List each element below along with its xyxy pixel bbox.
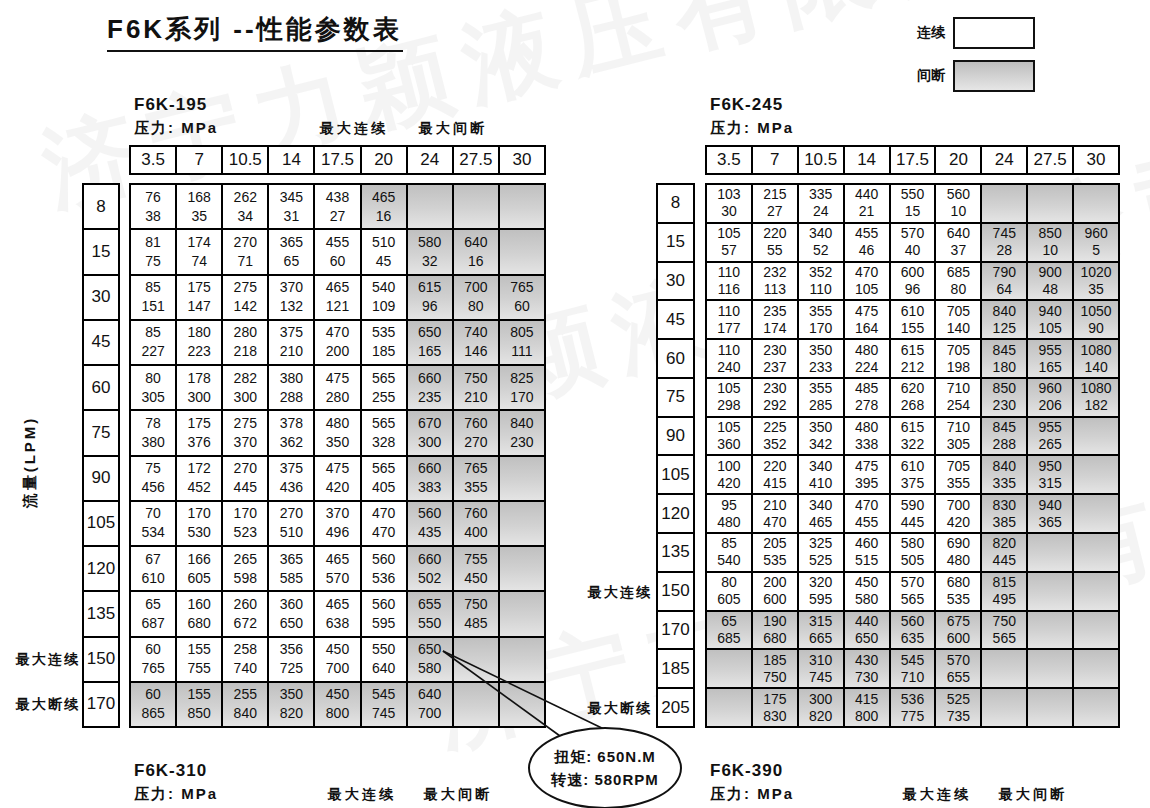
speed-value: 96 [905, 281, 921, 298]
speed-value: 35 [1088, 281, 1104, 298]
torque-value: 270 [280, 504, 303, 523]
param-cell: 940105 [1028, 301, 1072, 338]
torque-value: 185 [763, 652, 786, 669]
param-cell: 700420 [936, 495, 980, 532]
flow-label: 135 [658, 534, 693, 571]
parameter-grid: 7638168352623434531438274651681751747427… [129, 183, 546, 728]
speed-value: 111 [511, 342, 532, 361]
param-cell: 470200 [315, 321, 359, 364]
table-model-title: F6K-245 [710, 95, 783, 115]
speed-value: 342 [809, 436, 832, 453]
side-max-intermittent-label: 最大断续 [580, 700, 652, 718]
speed-value: 16 [468, 252, 484, 271]
torque-value: 900 [1038, 264, 1061, 281]
param-cell: 320595 [799, 573, 843, 610]
speed-value: 109 [372, 297, 395, 316]
param-cell: 17474 [177, 230, 221, 273]
torque-value: 705 [947, 458, 970, 475]
param-cell: 570655 [936, 650, 980, 687]
torque-value: 310 [809, 652, 832, 669]
param-cell: 350233 [799, 340, 843, 377]
param-cell: 170530 [177, 502, 221, 545]
torque-value: 550 [901, 186, 924, 203]
param-cell [1074, 534, 1118, 571]
param-cell [1028, 185, 1072, 222]
torque-value: 225 [763, 419, 786, 436]
speed-value: 140 [947, 320, 970, 337]
param-cell: 258740 [223, 638, 267, 681]
param-cell: 80605 [707, 573, 751, 610]
speed-value: 380 [141, 433, 164, 452]
side-max-continuous-label: 最大连续 [580, 584, 652, 602]
side-max-intermittent-label: 最大断续 [8, 696, 80, 714]
speed-value: 46 [859, 242, 875, 259]
speed-value: 55 [767, 242, 783, 259]
param-cell [500, 592, 544, 635]
speed-value: 775 [901, 708, 924, 725]
param-cell: 565405 [362, 457, 406, 500]
torque-value: 345 [280, 188, 303, 207]
torque-value: 190 [763, 613, 786, 630]
torque-value: 75 [145, 459, 161, 478]
speed-value: 151 [141, 297, 164, 316]
param-cell: 460515 [845, 534, 889, 571]
torque-value: 232 [763, 264, 786, 281]
param-cell: 565328 [362, 411, 406, 454]
param-cell: 380288 [269, 366, 313, 409]
param-cell [982, 689, 1026, 726]
param-cell: 180223 [177, 321, 221, 364]
param-cell: 375436 [269, 457, 313, 500]
torque-value: 80 [721, 574, 737, 591]
param-cell: 615212 [891, 340, 935, 377]
torque-value: 640 [464, 233, 487, 252]
speed-value: 34 [237, 207, 253, 226]
param-cell: 27071 [223, 230, 267, 273]
speed-value: 74 [191, 252, 207, 271]
torque-value: 750 [464, 369, 487, 388]
param-cell: 750565 [982, 612, 1026, 649]
param-cell: 275142 [223, 276, 267, 319]
torque-value: 175 [187, 414, 210, 433]
speed-value: 640 [372, 659, 395, 678]
torque-value: 375 [280, 459, 303, 478]
speed-value: 10 [1042, 242, 1058, 259]
footer-right-model: F6K-390 [710, 761, 783, 781]
speed-value: 212 [901, 359, 924, 376]
param-cell: 465638 [315, 592, 359, 635]
param-cell: 45560 [315, 230, 359, 273]
speed-value: 355 [947, 475, 970, 492]
speed-value: 595 [372, 614, 395, 633]
speed-value: 285 [809, 397, 832, 414]
speed-value: 170 [809, 320, 832, 337]
speed-value: 370 [234, 433, 257, 452]
param-cell: 205535 [753, 534, 797, 571]
param-cell: 10557 [707, 224, 751, 261]
footer-right-max-intermittent: 最大间断 [999, 786, 1067, 804]
legend-continuous-swatch [953, 17, 1035, 49]
param-cell: 940365 [1028, 495, 1072, 532]
speed-value: 510 [280, 523, 303, 542]
speed-value: 750 [763, 669, 786, 686]
param-cell: 475164 [845, 301, 889, 338]
speed-value: 30 [721, 203, 737, 220]
flow-label: 185 [658, 650, 693, 687]
param-cell: 64016 [454, 230, 498, 273]
param-cell: 820445 [982, 534, 1026, 571]
torque-value: 760 [464, 414, 487, 433]
footer-right-pressure-label: 压力: MPa [710, 785, 794, 804]
param-cell: 690480 [936, 534, 980, 571]
param-cell: 232113 [753, 263, 797, 300]
torque-value: 370 [280, 278, 303, 297]
speed-value: 278 [855, 397, 878, 414]
torque-value: 700 [464, 278, 487, 297]
param-cell: 535185 [362, 321, 406, 364]
param-cell: 565255 [362, 366, 406, 409]
torque-value: 745 [993, 225, 1016, 242]
torque-value: 580 [418, 233, 441, 252]
speed-value: 605 [187, 569, 210, 588]
speed-value: 270 [464, 433, 487, 452]
torque-value: 282 [234, 369, 257, 388]
speed-value: 113 [764, 281, 786, 298]
speed-value: 292 [763, 397, 786, 414]
torque-value: 356 [280, 640, 303, 659]
torque-value: 155 [187, 640, 210, 659]
param-cell: 33524 [799, 185, 843, 222]
torque-value: 560 [372, 550, 395, 569]
param-cell: 560435 [408, 502, 452, 545]
torque-value: 545 [901, 652, 924, 669]
torque-value: 60 [145, 640, 161, 659]
torque-value: 820 [993, 535, 1016, 552]
param-cell: 755450 [454, 547, 498, 590]
speed-value: 10 [951, 203, 967, 220]
param-cell: 172452 [177, 457, 221, 500]
speed-value: 27 [767, 203, 783, 220]
param-cell: 282300 [223, 366, 267, 409]
param-cell: 175376 [177, 411, 221, 454]
param-cell: 815495 [982, 573, 1026, 610]
param-cell: 415800 [845, 689, 889, 726]
speed-value: 305 [141, 388, 164, 407]
speed-value: 170 [510, 388, 533, 407]
side-max-continuous-label: 最大连续 [8, 651, 80, 669]
speed-value: 730 [855, 669, 878, 686]
param-cell: 450580 [845, 573, 889, 610]
param-cell: 475280 [315, 366, 359, 409]
footer-left-model: F6K-310 [134, 761, 207, 781]
param-cell: 760270 [454, 411, 498, 454]
param-cell: 356725 [269, 638, 313, 681]
torque-value: 825 [510, 369, 533, 388]
speed-value: 200 [326, 342, 349, 361]
pressure-header-cell: 14 [269, 147, 313, 173]
speed-value: 598 [234, 569, 257, 588]
torque-value: 675 [947, 613, 970, 630]
pressure-header-cell: 30 [1074, 147, 1118, 173]
legend-intermittent-swatch [953, 60, 1035, 92]
torque-value: 470 [372, 504, 395, 523]
torque-value: 650 [418, 640, 441, 659]
param-cell: 750485 [454, 592, 498, 635]
speed-value: 638 [326, 614, 349, 633]
torque-value: 103 [717, 186, 740, 203]
torque-value: 350 [280, 685, 303, 704]
speed-value: 445 [234, 478, 257, 497]
param-cell: 536775 [891, 689, 935, 726]
speed-value: 550 [418, 614, 441, 633]
speed-value: 420 [717, 475, 740, 492]
torque-value: 105 [717, 380, 740, 397]
speed-value: 155 [901, 320, 924, 337]
speed-value: 765 [141, 659, 164, 678]
torque-value: 610 [901, 303, 924, 320]
param-cell: 166605 [177, 547, 221, 590]
torque-value: 840 [993, 458, 1016, 475]
pressure-header-cell: 3.5 [131, 147, 175, 173]
speed-value: 415 [763, 475, 786, 492]
speed-value: 580 [855, 591, 878, 608]
torque-value: 415 [855, 691, 878, 708]
param-cell: 105298 [707, 379, 751, 416]
param-cell: 450700 [315, 638, 359, 681]
speed-value: 71 [237, 252, 253, 271]
speed-value: 530 [187, 523, 210, 542]
torque-value: 570 [901, 574, 924, 591]
speed-value: 385 [993, 514, 1016, 531]
param-cell: 280218 [223, 321, 267, 364]
torque-value: 60 [145, 685, 161, 704]
pressure-header-row: 3.5710.51417.5202427.530 [129, 145, 546, 175]
torque-value: 340 [809, 225, 832, 242]
param-cell: 235174 [753, 301, 797, 338]
torque-value: 378 [280, 414, 303, 433]
torque-value: 760 [464, 504, 487, 523]
speed-value: 570 [326, 569, 349, 588]
param-cell: 230292 [753, 379, 797, 416]
param-cell [1074, 612, 1118, 649]
param-cell: 68580 [936, 263, 980, 300]
torque-value: 455 [855, 225, 878, 242]
speed-value: 600 [947, 630, 970, 647]
torque-value: 438 [326, 188, 349, 207]
speed-value: 233 [809, 359, 832, 376]
torque-value: 172 [187, 459, 210, 478]
param-cell: 475395 [845, 456, 889, 493]
param-cell: 660383 [408, 457, 452, 500]
speed-value: 610 [141, 569, 164, 588]
torque-value: 450 [855, 574, 878, 591]
param-cell: 845288 [982, 418, 1026, 455]
torque-value: 955 [1038, 419, 1061, 436]
param-cell: 255840 [223, 683, 267, 726]
torque-value: 352 [809, 264, 832, 281]
torque-value: 95 [721, 497, 737, 514]
param-cell: 8175 [131, 230, 175, 273]
speed-value: 165 [1038, 359, 1061, 376]
speed-value: 335 [993, 475, 1016, 492]
torque-value: 440 [855, 613, 878, 630]
torque-value: 325 [809, 535, 832, 552]
torque-value: 765 [464, 459, 487, 478]
torque-value: 475 [326, 369, 349, 388]
torque-value: 845 [993, 342, 1016, 359]
torque-value: 280 [234, 323, 257, 342]
speed-value: 865 [141, 704, 164, 723]
torque-value: 67 [145, 550, 161, 569]
param-cell: 440650 [845, 612, 889, 649]
pressure-unit-label: 压力: MPa [134, 119, 218, 138]
param-cell: 615322 [891, 418, 935, 455]
flow-label: 60 [84, 366, 118, 409]
speed-value: 534 [141, 523, 164, 542]
param-cell: 270445 [223, 457, 267, 500]
torque-value: 655 [418, 595, 441, 614]
speed-value: 31 [284, 207, 300, 226]
speed-value: 480 [947, 552, 970, 569]
param-cell: 352110 [799, 263, 843, 300]
speed-value: 60 [330, 252, 346, 271]
torque-value: 365 [280, 233, 303, 252]
torque-value: 950 [1038, 458, 1061, 475]
torque-value: 340 [809, 497, 832, 514]
param-cell [1028, 534, 1072, 571]
torque-value: 65 [145, 595, 161, 614]
torque-value: 960 [1084, 225, 1107, 242]
footer-right-max-continuous: 最大连续 [903, 786, 971, 804]
legend-intermittent-label: 间断 [917, 67, 945, 85]
torque-value: 940 [1038, 303, 1061, 320]
speed-value: 265 [1038, 436, 1061, 453]
param-cell: 85540 [707, 534, 751, 571]
torque-value: 615 [901, 419, 924, 436]
speed-value: 680 [187, 614, 210, 633]
torque-value: 685 [947, 264, 970, 281]
speed-value: 700 [326, 659, 349, 678]
speed-value: 456 [141, 478, 164, 497]
speed-value: 35 [191, 207, 207, 226]
torque-value: 258 [234, 640, 257, 659]
speed-value: 80 [951, 281, 967, 298]
torque-value: 65 [721, 613, 737, 630]
torque-value: 710 [947, 419, 970, 436]
torque-value: 570 [947, 652, 970, 669]
speed-value: 635 [901, 630, 924, 647]
flow-label: 150 [84, 638, 118, 681]
param-cell: 680535 [936, 573, 980, 610]
torque-value: 166 [187, 550, 210, 569]
speed-value: 80 [468, 297, 484, 316]
torque-value: 455 [326, 233, 349, 252]
speed-value: 435 [418, 523, 441, 542]
speed-value: 445 [993, 552, 1016, 569]
torque-value: 175 [187, 278, 210, 297]
speed-value: 142 [234, 297, 257, 316]
flow-axis-label: 流量(LPM) [21, 416, 40, 509]
flow-label: 90 [84, 457, 118, 500]
torque-value: 85 [145, 278, 161, 297]
speed-value: 96 [422, 297, 438, 316]
pressure-unit-label: 压力: MPa [710, 119, 794, 138]
flow-label: 120 [658, 495, 693, 532]
torque-value: 640 [947, 225, 970, 242]
param-cell [1028, 612, 1072, 649]
flow-label: 30 [658, 263, 693, 300]
torque-value: 640 [418, 685, 441, 704]
torque-value: 110 [718, 342, 740, 359]
param-cell: 75456 [131, 457, 175, 500]
param-cell: 560635 [891, 612, 935, 649]
torque-value: 565 [372, 369, 395, 388]
torque-value: 705 [947, 342, 970, 359]
torque-value: 450 [326, 640, 349, 659]
torque-value: 81 [145, 233, 161, 252]
param-cell: 9605 [1074, 224, 1118, 261]
torque-value: 205 [763, 535, 786, 552]
param-cell: 710305 [936, 418, 980, 455]
param-cell: 560536 [362, 547, 406, 590]
torque-value: 180 [187, 323, 210, 342]
torque-value: 840 [993, 303, 1016, 320]
torque-value: 565 [372, 459, 395, 478]
speed-value: 210 [280, 342, 303, 361]
param-cell: 470455 [845, 495, 889, 532]
torque-value: 660 [418, 550, 441, 569]
torque-value: 230 [763, 380, 786, 397]
speed-value: 5 [1092, 242, 1100, 259]
torque-value: 765 [510, 278, 533, 297]
param-cell: 74528 [982, 224, 1026, 261]
param-cell: 45546 [845, 224, 889, 261]
speed-value: 496 [326, 523, 349, 542]
speed-value: 227 [141, 342, 164, 361]
pressure-header-cell: 7 [177, 147, 221, 173]
torque-value: 465 [372, 188, 395, 207]
speed-value: 525 [809, 552, 832, 569]
torque-value: 335 [809, 186, 832, 203]
param-cell: 56010 [936, 185, 980, 222]
speed-value: 338 [855, 436, 878, 453]
speed-value: 740 [234, 659, 257, 678]
torque-value: 545 [372, 685, 395, 704]
param-cell [1028, 689, 1072, 726]
flow-label: 15 [658, 224, 693, 261]
param-cell: 350342 [799, 418, 843, 455]
pressure-header-cell: 24 [982, 147, 1026, 173]
torque-value: 850 [993, 380, 1016, 397]
speed-value: 75 [145, 252, 161, 271]
param-cell: 60096 [891, 263, 935, 300]
param-cell: 660235 [408, 366, 452, 409]
param-cell: 225352 [753, 418, 797, 455]
speed-value: 268 [901, 397, 924, 414]
param-cell: 95480 [707, 495, 751, 532]
torque-value: 450 [326, 685, 349, 704]
speed-value: 21 [859, 203, 875, 220]
param-cell: 170523 [223, 502, 267, 545]
param-cell: 325525 [799, 534, 843, 571]
torque-value: 1080 [1080, 380, 1111, 397]
speed-value: 452 [187, 478, 210, 497]
param-cell: 830385 [982, 495, 1026, 532]
torque-value: 170 [234, 504, 257, 523]
speed-value: 710 [901, 669, 924, 686]
param-cell: 220415 [753, 456, 797, 493]
param-cell: 270510 [269, 502, 313, 545]
